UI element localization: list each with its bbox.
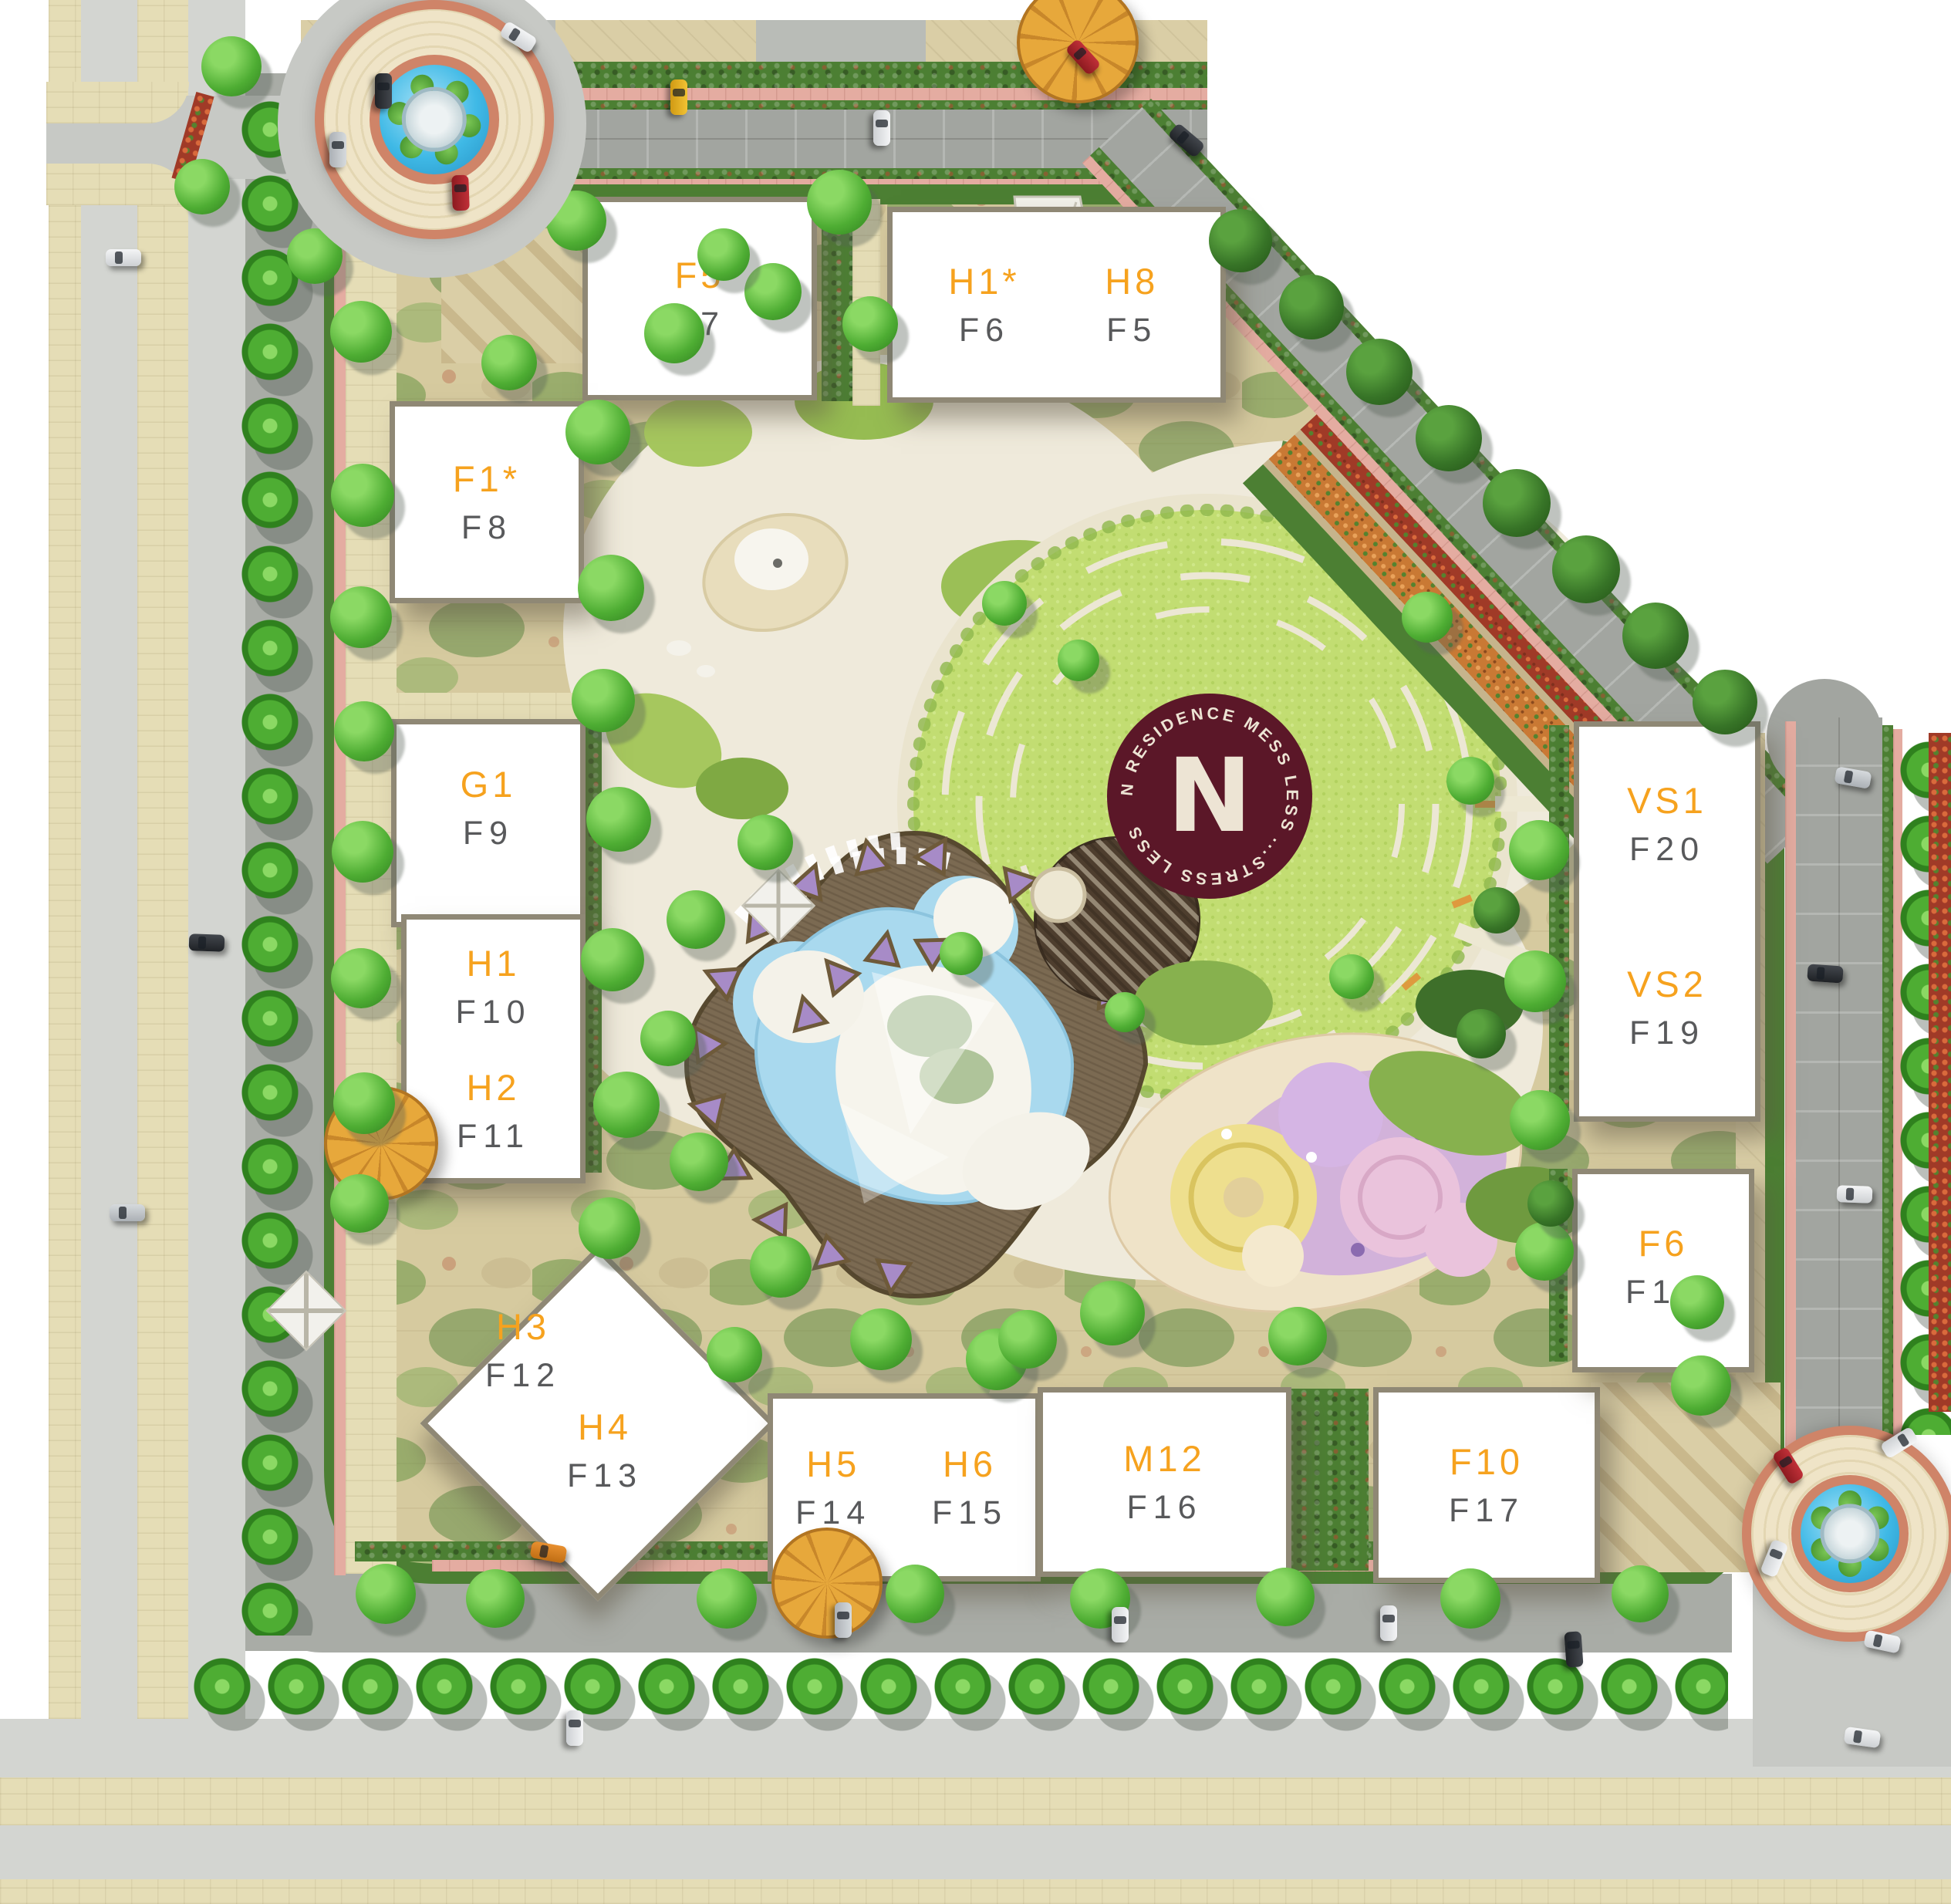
building-unit: F16 [1126,1489,1202,1527]
building-code: H1 [466,942,520,984]
building-unit: F10 [455,994,531,1031]
tree-icon [331,464,394,527]
tree-icon [330,1174,389,1233]
tree-icon [1483,469,1551,537]
building-unit: F13 [567,1457,643,1495]
site-plan: F5 F7 H1* F6 H8 F5 F1* F8 G1 F9 H1 F10 H… [0,0,1951,1904]
tree-icon [1329,954,1374,999]
tree-icon [1510,1090,1570,1150]
tree-icon [1105,992,1145,1032]
right-road [1796,717,1882,1458]
tree-icon [667,890,725,949]
tree-icon [1209,209,1272,272]
tree-icon [1416,405,1482,471]
car-icon [329,132,346,167]
tree-icon [1670,1275,1724,1329]
tree-icon [640,1011,696,1066]
tree-icon [1671,1355,1731,1416]
tree-icon [334,701,394,761]
building-unit: F12 [485,1357,561,1395]
building-code: VS1 [1627,779,1707,822]
flower-strip [1929,733,1951,1412]
tree-icon [1058,640,1099,681]
tree-icon [1402,592,1453,643]
car-icon [1564,1631,1583,1667]
car-icon [1807,964,1843,983]
tree-icon [331,948,391,1008]
car-icon [566,1710,583,1746]
car-icon [670,79,687,115]
tree-icon [998,1310,1057,1369]
tree-icon [581,928,644,991]
logo-letter: N [1167,737,1252,856]
building-code: F1* [453,457,521,500]
building-g1-f9[interactable]: G1 F9 [391,719,586,927]
building-unit: F15 [932,1494,1008,1532]
tree-icon [1268,1307,1327,1366]
building-code: F6 [1639,1222,1689,1264]
building-code: F10 [1450,1440,1524,1483]
tree-icon [644,303,704,363]
hedge-strip [1549,725,1569,1111]
tree-icon [593,1072,660,1138]
tree-icon [333,1072,395,1134]
building-code: H4 [578,1406,632,1448]
tree-icon [697,228,750,281]
car-icon [1112,1607,1129,1642]
building-unit: F14 [795,1494,871,1532]
shade-structure [771,1528,883,1639]
building-code: H1* [948,260,1020,302]
building-code: VS2 [1627,963,1707,1005]
tree-icon [330,586,392,648]
tree-icon [738,815,793,870]
tree-icon [174,159,230,214]
building-vs1-vs2[interactable]: VS1 F20 VS2 F19 [1574,721,1760,1122]
tree-icon [850,1308,912,1370]
building-code: H2 [466,1066,520,1109]
tree-icon [1552,535,1620,603]
tree-icon [1693,670,1757,734]
building-m12-f16[interactable]: M12 F16 [1038,1387,1291,1577]
fountain-icon [1820,1504,1879,1563]
tree-icon [697,1568,757,1629]
building-unit: F19 [1629,1014,1705,1052]
tree-icon [707,1327,762,1382]
car-icon [106,249,141,266]
building-code: G1 [461,763,517,805]
car-icon [110,1204,145,1221]
tree-icon [1279,275,1344,339]
building-unit: F6 [959,312,1010,349]
building-f1-f8[interactable]: F1* F8 [390,401,584,603]
building-f6-f18[interactable]: F6 F18 [1572,1169,1754,1372]
building-code: H6 [943,1443,997,1485]
tree-icon [1456,1009,1506,1058]
tree-icon [481,335,537,390]
tree-icon [1527,1180,1574,1227]
sidewalk [1785,721,1796,1454]
tree-icon [1446,757,1494,805]
tree-icon [670,1133,728,1191]
tree-icon [807,170,872,235]
car-icon [1380,1605,1397,1641]
building-unit: F9 [463,815,514,852]
tree-icon [886,1565,944,1623]
tree-icon [1622,603,1689,669]
building-code: H5 [806,1443,860,1485]
tree-icon [332,821,393,883]
car-icon [451,175,470,211]
sidewalk [334,194,346,1575]
tree-icon [1509,820,1569,880]
tree-icon [578,555,644,621]
tree-icon [201,36,262,96]
building-unit: F17 [1449,1492,1524,1530]
tree-icon [356,1564,416,1624]
tree-icon [1346,339,1413,405]
building-code: H8 [1105,260,1159,302]
tree-icon [572,669,635,732]
street-trees [193,1657,1728,1731]
building-code: H3 [496,1305,550,1348]
building-code: M12 [1123,1437,1205,1480]
hedge-strip [1882,725,1893,1450]
tree-icon [1612,1565,1669,1622]
tree-icon [1515,1222,1574,1281]
building-h3-h4[interactable]: H3 F12 H4 F13 [432,1258,764,1589]
car-icon [835,1602,852,1638]
tree-icon [466,1569,525,1628]
tree-icon [744,263,802,320]
street-trees [241,100,315,1636]
tree-icon [1080,1281,1145,1345]
tree-icon [940,932,983,975]
car-icon [1837,1185,1873,1204]
building-f10-f17[interactable]: F10 F17 [1373,1387,1600,1583]
building-h1-h8[interactable]: H1* F6 H8 F5 [887,207,1226,403]
building-unit: F8 [461,509,512,547]
car-icon [375,73,392,109]
building-unit: F5 [1106,312,1157,349]
tree-icon [586,787,651,852]
car-icon [189,933,225,952]
tree-icon [750,1236,812,1298]
building-unit: F20 [1629,831,1705,869]
hedge-strip [1287,1389,1369,1571]
project-logo: N RESIDENCE MESS LESS ...STRESS LESS N [1105,692,1314,900]
car-icon [873,110,890,146]
tree-icon [1440,1568,1500,1629]
tree-icon [330,301,392,363]
tree-icon [982,581,1027,626]
tree-icon [1504,950,1566,1012]
tree-icon [1473,887,1520,933]
tree-icon [565,400,630,464]
tree-icon [579,1197,640,1259]
tree-icon [842,296,898,352]
tree-icon [1256,1568,1315,1626]
building-unit: F11 [457,1118,530,1156]
